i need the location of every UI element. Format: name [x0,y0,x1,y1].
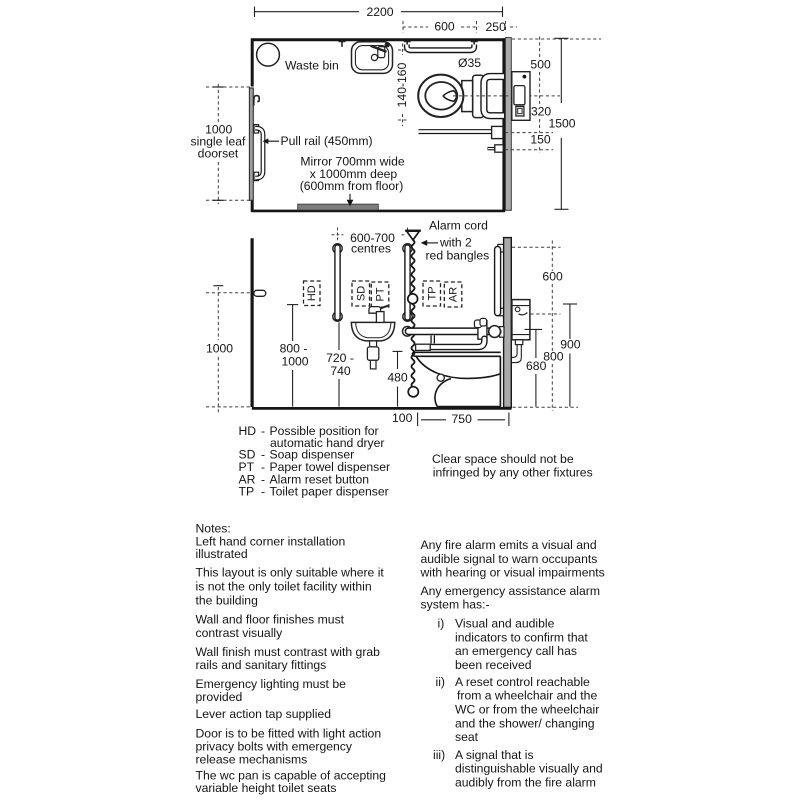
svg-text:800 -: 800 - [280,342,308,356]
svg-text:150: 150 [530,133,551,147]
svg-text:Toilet paper dispenser: Toilet paper dispenser [270,485,389,499]
svg-text:HD: HD [239,424,257,438]
svg-text:Ø35: Ø35 [458,56,481,70]
svg-text:WC or from the wheelchair: WC or from the wheelchair [455,703,599,717]
svg-text:and the shower/ changing: and the shower/ changing [455,716,595,730]
svg-text:Emergency lighting must be: Emergency lighting must be [196,677,347,691]
svg-text:Waste bin: Waste bin [285,59,339,73]
svg-text:1000: 1000 [281,355,308,369]
svg-text:i): i) [438,617,445,631]
svg-text:600: 600 [434,20,455,34]
svg-text:seat: seat [455,730,479,744]
svg-text:Alarm cord: Alarm cord [429,218,488,232]
svg-text:Wall finish must contrast with: Wall finish must contrast with grab [196,645,381,659]
svg-text:indicators to confirm that: indicators to confirm that [455,630,588,644]
svg-text:680: 680 [526,359,547,373]
svg-text:privacy bolts with emergency: privacy bolts with emergency [196,739,353,753]
svg-text:Any fire alarm emits a visual: Any fire alarm emits a visual and [421,538,597,552]
svg-text:with 2: with 2 [439,235,472,249]
svg-text:contrast visually: contrast visually [196,626,284,640]
svg-text:HD: HD [306,285,318,301]
svg-text:system has:-: system has:- [421,598,490,612]
svg-text:Notes:: Notes: [196,521,231,535]
svg-text:release mechanisms: release mechanisms [196,753,308,767]
svg-text:600: 600 [542,270,563,284]
svg-text:1000: 1000 [206,341,233,355]
svg-text:centres: centres [351,242,391,256]
svg-text:audible signal to warn occupan: audible signal to warn occupants [421,552,598,566]
svg-text:740: 740 [330,364,351,378]
svg-text:illustrated: illustrated [196,547,248,561]
svg-text:Any emergency assistance alarm: Any emergency assistance alarm [421,584,601,598]
svg-text:from a wheelchair and the: from a wheelchair and the [457,689,597,703]
svg-text:provided: provided [196,690,243,704]
svg-text:900: 900 [560,338,581,352]
svg-text:Pull rail (450mm): Pull rail (450mm) [281,134,373,148]
svg-text:This layout is only suitable w: This layout is only suitable where it [196,566,385,580]
svg-text:doorset: doorset [198,146,239,160]
svg-text:-: - [261,424,265,438]
svg-text:(600mm from floor): (600mm from floor) [300,179,404,193]
svg-text:140-160: 140-160 [395,62,409,107]
svg-text:distinguishable visually and: distinguishable visually and [455,762,603,776]
svg-text:Wall and floor finishes must: Wall and floor finishes must [196,613,345,627]
svg-text:the building: the building [196,593,258,607]
svg-text:A signal that is: A signal that is [455,748,534,762]
svg-text:TP: TP [426,286,438,300]
svg-text:750: 750 [452,412,473,426]
svg-text:Door is to be fitted with ligh: Door is to be fitted with light action [196,726,382,740]
svg-text:AR: AR [448,287,460,302]
svg-text:500: 500 [530,58,551,72]
svg-text:an emergency call has: an emergency call has [455,644,577,658]
svg-text:infringed by any other fixture: infringed by any other fixtures [433,466,593,480]
svg-text:A reset control reachable: A reset control reachable [455,675,590,689]
svg-text:2200: 2200 [366,5,393,19]
svg-text:red bangles: red bangles [426,248,490,262]
svg-text:variable height toilet seats: variable height toilet seats [196,781,337,795]
svg-text:is not the only toilet facilit: is not the only toilet facility within [196,580,372,594]
svg-text:ii): ii) [436,675,445,689]
svg-text:TP: TP [239,485,255,499]
svg-text:Visual and audible: Visual and audible [455,617,555,631]
svg-text:100: 100 [392,411,413,425]
svg-text:PT: PT [375,287,387,301]
svg-text:480: 480 [387,371,408,385]
svg-text:250: 250 [486,20,507,34]
svg-text:Clear space should not be: Clear space should not be [432,452,574,466]
svg-text:audibly from the fire alarm: audibly from the fire alarm [455,775,596,789]
svg-text:iii): iii) [433,748,445,762]
svg-text:SD: SD [355,286,367,301]
svg-text:with hearing or visual impairm: with hearing or visual impairments [420,566,605,580]
svg-text:rails and sanitary fittings: rails and sanitary fittings [196,658,327,672]
svg-text:-: - [261,485,265,499]
svg-text:1500: 1500 [548,117,575,131]
svg-text:been received: been received [455,658,532,672]
svg-text:Lever action tap supplied: Lever action tap supplied [196,707,332,721]
